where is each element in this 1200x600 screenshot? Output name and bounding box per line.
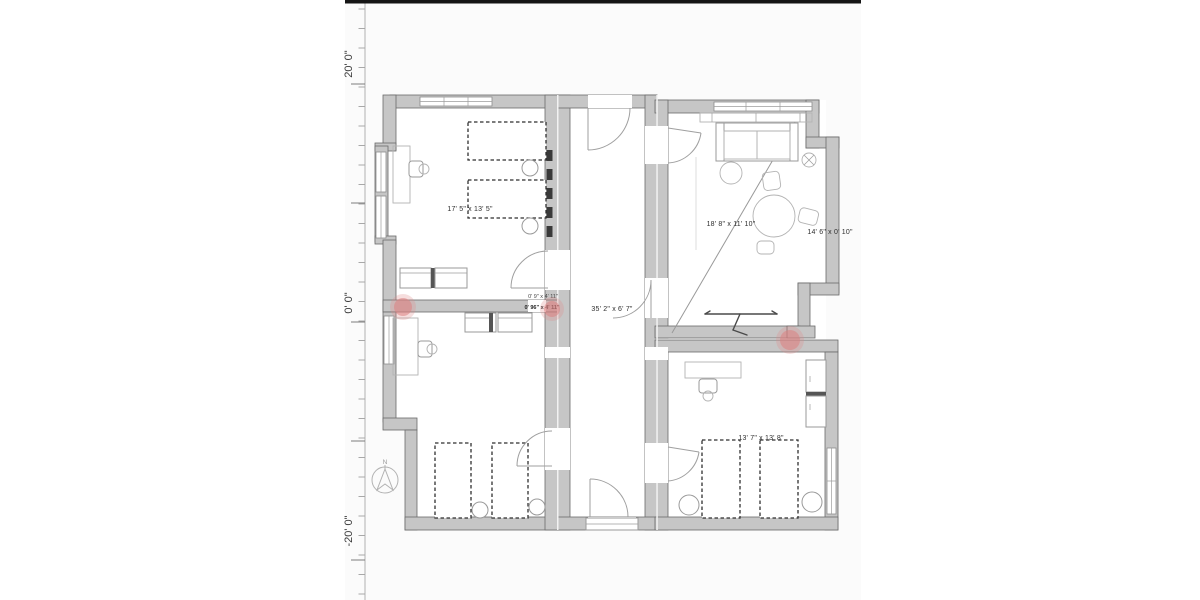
room-dimension-label: 18' 8" x 11' 10" (707, 221, 756, 228)
sofa[interactable] (716, 123, 798, 161)
opening-living-top (645, 126, 668, 164)
wall-bottom-left-room-right[interactable] (545, 312, 558, 530)
entry-threshold (586, 518, 638, 530)
wardrobe[interactable] (806, 360, 826, 427)
ruler-label-neg20ft: -20' 0" (343, 515, 355, 546)
bedside-stool[interactable] (679, 495, 699, 515)
opening-pass-right (645, 347, 668, 360)
ruler-label-20ft: 20' 0" (343, 50, 355, 78)
bed[interactable] (702, 440, 740, 518)
bedside-stool[interactable] (802, 492, 822, 512)
wall-bottom-left-step[interactable] (383, 418, 417, 430)
ruler-label-0ft: 0' 0" (343, 292, 355, 313)
opening-corridor-top (588, 95, 632, 108)
wall-living-corner-step-v[interactable] (798, 283, 810, 333)
wall-living-right[interactable] (826, 137, 839, 293)
bedside-stool[interactable] (472, 502, 488, 518)
wall-bottom-left-lower[interactable] (405, 430, 417, 530)
bed[interactable] (435, 443, 471, 518)
wall-bedroom3-bottom[interactable] (655, 517, 838, 530)
opening-pass-left (545, 347, 570, 358)
bed[interactable] (468, 122, 546, 160)
bedside-stool[interactable] (522, 160, 538, 176)
room-dimension-label: 14' 6" x 0' 10" (807, 229, 853, 236)
floor-plan-app: 20' 0" 0' 0" -20' 0" (0, 0, 1200, 600)
room-dimension-label: 35' 2" x 6' 7" (591, 306, 633, 313)
opening-bedroom3-corridor (645, 443, 668, 483)
bed[interactable] (760, 440, 798, 518)
wall-bedroom3-left[interactable] (657, 352, 668, 530)
window-bedroom3-right[interactable] (827, 448, 836, 514)
bedside-stool[interactable] (529, 499, 545, 515)
wall-bedroom3-top[interactable] (655, 340, 838, 352)
bedside-stool[interactable] (522, 218, 538, 234)
opening-living-corridor (645, 278, 668, 318)
window-bedroom1-left-a[interactable] (376, 152, 386, 192)
window-bedroom2-left[interactable] (384, 316, 394, 364)
bed[interactable] (492, 443, 528, 518)
window-bedroom1-left-b[interactable] (376, 196, 386, 238)
window-bedroom1-top[interactable] (420, 97, 492, 106)
issue-marker[interactable] (540, 297, 564, 321)
compass-north-label: N (383, 459, 388, 466)
room-dimension-label: 13' 7" x 13' 8" (738, 435, 784, 442)
wall-left-upper[interactable] (383, 95, 396, 150)
issue-marker[interactable] (776, 326, 804, 354)
ruler-top-bar (345, 0, 861, 4)
floor-plan-canvas: 20' 0" 0' 0" -20' 0" (0, 0, 1200, 600)
storage-cabinets[interactable] (465, 313, 532, 332)
wall-bottom-left-bottom[interactable] (405, 517, 558, 530)
opening-bedroom2-corridor (545, 428, 570, 470)
issue-marker[interactable] (390, 294, 416, 320)
left-building-notch (377, 430, 405, 535)
storage-cabinets[interactable] (400, 268, 467, 288)
opening-bedroom1-corridor (545, 250, 570, 290)
room-dimension-label: 17' 5" x 13' 5" (447, 206, 493, 213)
